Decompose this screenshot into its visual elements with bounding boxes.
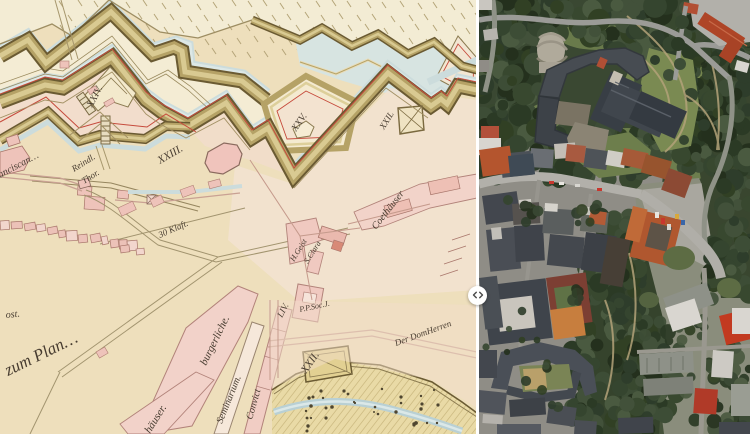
svg-text:ost.: ost. — [5, 309, 20, 321]
